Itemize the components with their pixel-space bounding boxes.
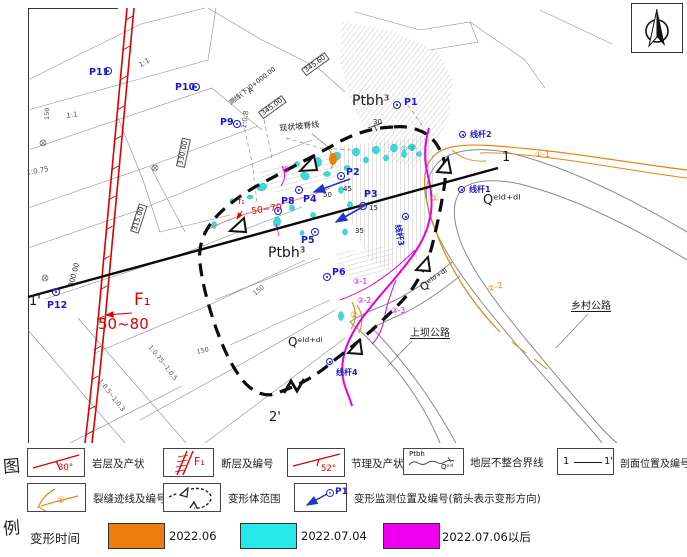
time-label: 2022.06: [169, 529, 217, 543]
map-label-layer: Ptbh³Ptbh³Qᵉˡᵈ⁺ᵈˡQᵉˡᵈ⁺ᵈˡQᵉˡᵈ⁺ᵈˡF₁50~80f₁…: [0, 0, 687, 445]
monitor-point-marker: [393, 101, 401, 109]
north-arrow: [631, 3, 683, 53]
legend-char-li: 例: [2, 513, 21, 539]
dip-value: 35: [355, 228, 364, 235]
section-right: 1': [604, 457, 613, 467]
monitor-point-label: 线杆2: [470, 131, 492, 139]
monitor-point-label: P11: [89, 68, 109, 78]
monitor-point-label: P10: [175, 83, 195, 93]
elevation-300-00: 300.00: [68, 262, 81, 287]
monitor-point-label: 线杆4: [336, 369, 358, 377]
legend-label-deform-extent: 变形体范围: [228, 491, 281, 506]
monitor-point-marker: [52, 288, 60, 296]
monitor-point-marker: [458, 186, 465, 193]
crack-label-3: ③: [282, 167, 290, 176]
unconformity-upper: Ptbh: [409, 451, 425, 458]
monitor-point-marker: [359, 202, 367, 210]
monitor-point-label: P6: [332, 268, 346, 278]
monitor-point-id: P1: [335, 488, 348, 497]
legend-box-deform-extent: [163, 483, 221, 512]
strata-label-ptbh-upper: Ptbh³: [352, 94, 389, 108]
time-swatch: [240, 523, 297, 549]
legend-box-section: 1 1': [557, 448, 614, 475]
fault-icon: [164, 449, 213, 476]
legend-label-joint: 节理及产状: [351, 456, 404, 471]
elevation-345-00: 345.00: [258, 95, 286, 119]
section-end-2-prime: 2': [269, 411, 281, 424]
slope-ratio: 1:1: [66, 111, 78, 119]
strata-label-q-mid: Qᵉˡᵈ⁺ᵈˡ: [418, 267, 451, 293]
time-label: 2022.07.06以后: [442, 529, 531, 545]
legend-box-crack: ①: [27, 483, 86, 512]
crack-label-1-3: ①-3: [401, 146, 414, 153]
legend-label-strata: 岩层及产状: [92, 456, 145, 471]
monitor-point-marker: [326, 358, 333, 365]
time-swatch: [108, 523, 165, 549]
monitor-point-marker: [233, 120, 241, 128]
crack-label-3-2: ③-2: [357, 297, 371, 305]
monitor-point-label: P3: [364, 190, 378, 200]
monitor-point-marker: [402, 213, 409, 220]
section-left: 1: [563, 457, 569, 467]
legend-box-joint: 52°: [287, 448, 345, 477]
legend-box-fault: F₁: [163, 448, 214, 477]
legend-box-monitor: P1: [294, 483, 347, 512]
monitor-point-label: P1: [404, 98, 418, 108]
slope-ratio: 1:0.5~1:0.3: [97, 378, 126, 413]
monitor-point-marker: [323, 273, 331, 281]
monitor-point-label: P5: [301, 236, 315, 246]
monitor-point-label: P2: [346, 168, 360, 178]
time-label: 2022.07.04: [301, 529, 367, 543]
section-line-icon: [574, 462, 602, 463]
crack-label-3-1: ③-1: [353, 278, 367, 286]
joint-value: 52°: [321, 465, 336, 474]
slope-ratio: 1:1: [138, 57, 151, 69]
legend-label-crack: 裂缝迹线及编号: [93, 491, 167, 506]
monitor-point-marker: [295, 186, 303, 194]
dimension-label: 150: [44, 108, 51, 120]
time-row-title: 变形时间: [30, 528, 80, 547]
monitor-point-marker: [459, 131, 466, 138]
road-label-xiangcun: 乡村公路: [571, 302, 611, 312]
crack-badge: ①: [57, 497, 65, 506]
dip-value: 15: [369, 205, 378, 212]
legend-char-tu: 图: [2, 451, 21, 477]
monitor-point-label: 线杆1: [469, 186, 491, 194]
strata-label-ptbh-center: Ptbh³: [268, 246, 305, 260]
legend-label-monitor: 变形监测位置及编号(箭头表示变形方向): [354, 491, 541, 506]
section-end-1: 1: [502, 151, 510, 164]
slope-ratio: 1:0.8: [241, 110, 250, 129]
legend-label-fault: 断层及编号: [221, 456, 274, 471]
fault-value: F₁: [194, 456, 205, 467]
dimension-label: 150: [252, 284, 266, 297]
road-label-shangba: 上坝公路: [410, 329, 450, 339]
north-arrow-icon: [632, 4, 682, 52]
monitor-point-label: 线杆3: [393, 224, 405, 247]
dip-value: 30: [373, 119, 382, 126]
slope-ratio: 1:0.75: [26, 166, 49, 177]
monitor-point-label: P9: [220, 118, 234, 128]
time-swatch: [383, 523, 440, 549]
legend-label-unconformity: 地层不整合界线: [470, 455, 544, 470]
fault-f1-dip: 50~80: [98, 317, 149, 332]
monitor-point-marker: [337, 172, 345, 180]
elevation-345-60: 345.60: [301, 52, 329, 76]
legend-box-strata: 30°: [27, 448, 85, 477]
section-end-1-prime: 1': [29, 295, 41, 308]
dimension-label: 150: [196, 346, 210, 355]
monitor-point-label: P12: [47, 301, 67, 311]
legend-label-section: 剖面位置及编号: [620, 455, 687, 470]
crack-label-2: ②: [350, 312, 358, 321]
deformation-extent-icon: [164, 484, 220, 511]
crack-label-2-2: ②-2: [487, 281, 504, 293]
survey-line-label: 测线(下)0+000.00: [228, 66, 277, 106]
crack-label-1: ①: [431, 195, 439, 204]
strike-dip-value: 30°: [58, 464, 73, 473]
strata-label-q-bottom: Qᵉˡᵈ⁺ᵈˡ: [288, 336, 323, 348]
monitor-point-marker: [274, 207, 282, 215]
elevation-315-00: 315.00: [130, 204, 147, 234]
geological-plan-drawing: Ptbh³Ptbh³Qᵉˡᵈ⁺ᵈˡQᵉˡᵈ⁺ᵈˡQᵉˡᵈ⁺ᵈˡF₁50~80f₁…: [0, 0, 687, 557]
slope-ratio: 1:0.75~1:0.5: [147, 344, 179, 382]
legend-box-unconformity: Ptbh Qᵉˡᵈ: [403, 448, 464, 475]
crack-label-3-3: ③-3: [391, 307, 405, 315]
elevation-330-00: 330.00: [176, 138, 191, 168]
minor-fault-label: f₁: [238, 198, 245, 207]
strike-dip-icon: [28, 449, 84, 476]
ridge-line-label: 现状坡脊线: [279, 121, 320, 133]
strata-label-q-right: Qᵉˡᵈ⁺ᵈˡ: [483, 194, 520, 207]
dip-value: 45: [343, 186, 352, 193]
dip-value: 50: [323, 192, 332, 199]
unconformity-lower: Qᵉˡᵈ: [441, 464, 453, 471]
monitor-point-label: P4: [303, 195, 317, 205]
crack-label-1-1: ①-1: [535, 151, 550, 159]
monitor-point-label: P8: [281, 197, 295, 207]
fault-f1-label: F₁: [134, 292, 151, 309]
